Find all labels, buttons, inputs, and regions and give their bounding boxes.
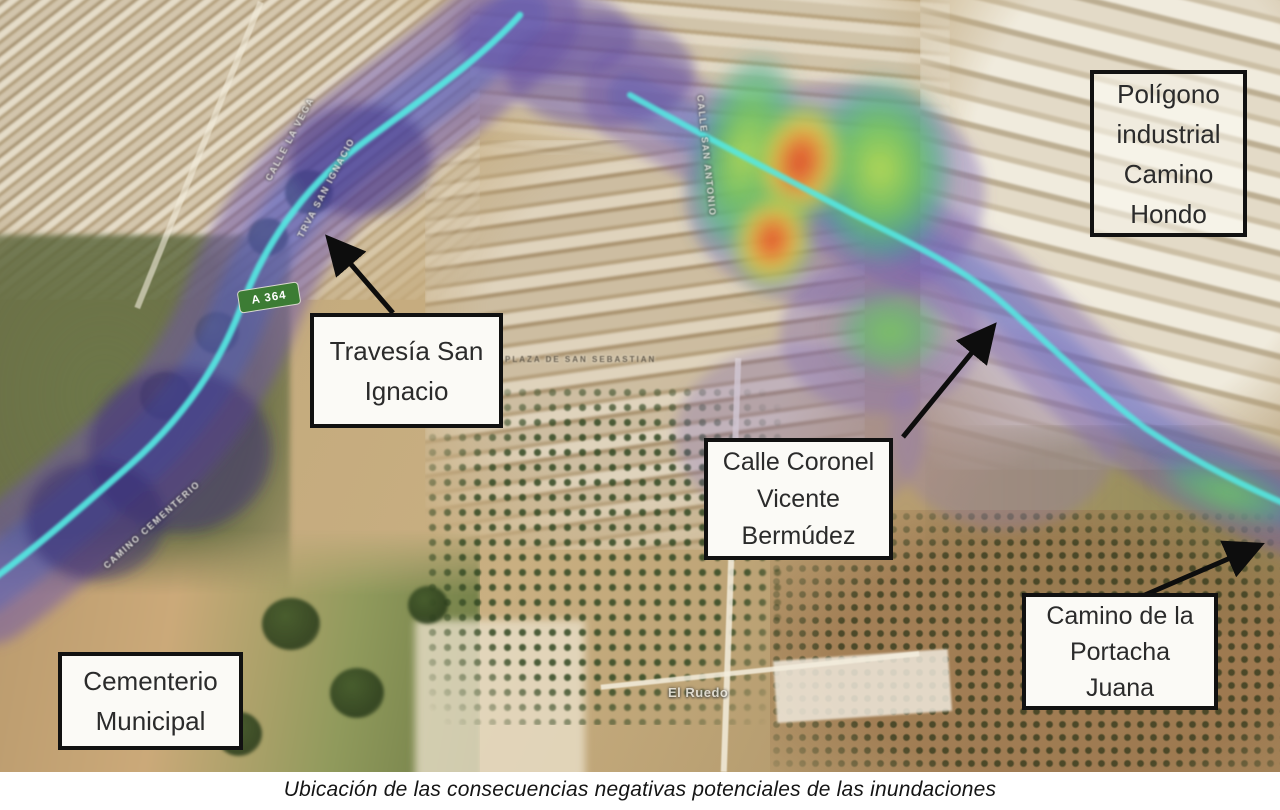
callout-line: Camino de la bbox=[1046, 598, 1193, 634]
terrain-scrub-left bbox=[0, 235, 290, 615]
road-a364 bbox=[134, 1, 263, 309]
callout-line: Ignacio bbox=[365, 371, 449, 411]
road-el-ruedo bbox=[601, 651, 920, 689]
tree-cluster bbox=[195, 312, 239, 354]
street-label: CALLE SAN ANTONIO bbox=[695, 94, 718, 217]
road-vertical bbox=[721, 358, 741, 772]
terrain-industrial-estate bbox=[920, 0, 1280, 470]
callout-line: Travesía San bbox=[330, 331, 484, 371]
street-label: CAMINO CEMENTERIO bbox=[102, 479, 202, 571]
road-sign-a364: A 364 bbox=[237, 281, 302, 313]
callout-poligono-industrial: Polígono industrial Camino Hondo bbox=[1090, 70, 1247, 237]
arrow-travesia-san-ignacio bbox=[330, 240, 393, 313]
tree-cluster bbox=[408, 586, 448, 624]
callout-calle-coronel-vicente-bermudez: Calle Coronel Vicente Bermúdez bbox=[704, 438, 893, 560]
satellite-map: CALLE LA VEGA TRVA SAN IGNACIO CALLE SAN… bbox=[0, 0, 1280, 772]
tree-cluster bbox=[285, 170, 333, 214]
terrain-urban-top-center bbox=[470, 0, 950, 155]
callout-cementerio-municipal: Cementerio Municipal bbox=[58, 652, 243, 750]
terrain-fields-bottom-left bbox=[0, 530, 480, 772]
terrain-bare-patch bbox=[415, 620, 585, 772]
tree-cluster bbox=[248, 218, 288, 256]
callout-line: Portacha bbox=[1070, 634, 1170, 670]
tree-cluster bbox=[330, 668, 384, 718]
callout-line: Cementerio bbox=[83, 661, 217, 701]
flood-extent bbox=[0, 0, 1280, 585]
street-label: TRVA SAN IGNACIO bbox=[296, 136, 357, 239]
terrain-fields-mid-right bbox=[925, 425, 1280, 635]
callout-line: Municipal bbox=[96, 701, 206, 741]
callout-line: industrial bbox=[1116, 114, 1220, 154]
arrow-camino-portacha bbox=[1138, 546, 1258, 598]
stream-lines bbox=[0, 15, 1280, 585]
terrain-olive-grove-center bbox=[425, 385, 785, 725]
flood-depth-heatmap bbox=[669, 38, 1280, 543]
street-label: CALLE LA VEGA bbox=[264, 96, 316, 183]
callout-camino-de-la-portacha-juana: Camino de la Portacha Juana bbox=[1022, 593, 1218, 710]
callout-line: Bermúdez bbox=[742, 518, 856, 555]
callout-line: Vicente bbox=[757, 481, 840, 518]
callout-line: Hondo bbox=[1130, 194, 1207, 234]
figure-caption: Ubicación de las consecuencias negativas… bbox=[0, 778, 1280, 802]
tree-cluster bbox=[140, 372, 192, 420]
terrain-buildings-el-ruedo bbox=[773, 649, 952, 723]
terrain-town-center bbox=[425, 140, 865, 550]
tree-cluster bbox=[262, 598, 320, 650]
terrain-olive-grove-right bbox=[770, 510, 1280, 772]
street-label: PLAZA DE SAN SEBASTIAN bbox=[505, 355, 656, 364]
callout-arrows bbox=[0, 0, 1280, 772]
street-label: El Ruedo bbox=[668, 685, 728, 700]
callout-line: Juana bbox=[1086, 670, 1154, 706]
arrow-calle-coronel bbox=[903, 328, 992, 437]
callout-travesia-san-ignacio: Travesía San Ignacio bbox=[310, 313, 503, 428]
flood-overlay bbox=[0, 0, 1280, 772]
callout-line: Calle Coronel bbox=[723, 444, 874, 481]
terrain-urban-top-left bbox=[0, 0, 480, 300]
callout-line: Camino bbox=[1124, 154, 1214, 194]
tree-cluster bbox=[216, 712, 262, 756]
callout-line: Polígono bbox=[1117, 74, 1220, 114]
flood-map-figure: CALLE LA VEGA TRVA SAN IGNACIO CALLE SAN… bbox=[0, 0, 1280, 810]
